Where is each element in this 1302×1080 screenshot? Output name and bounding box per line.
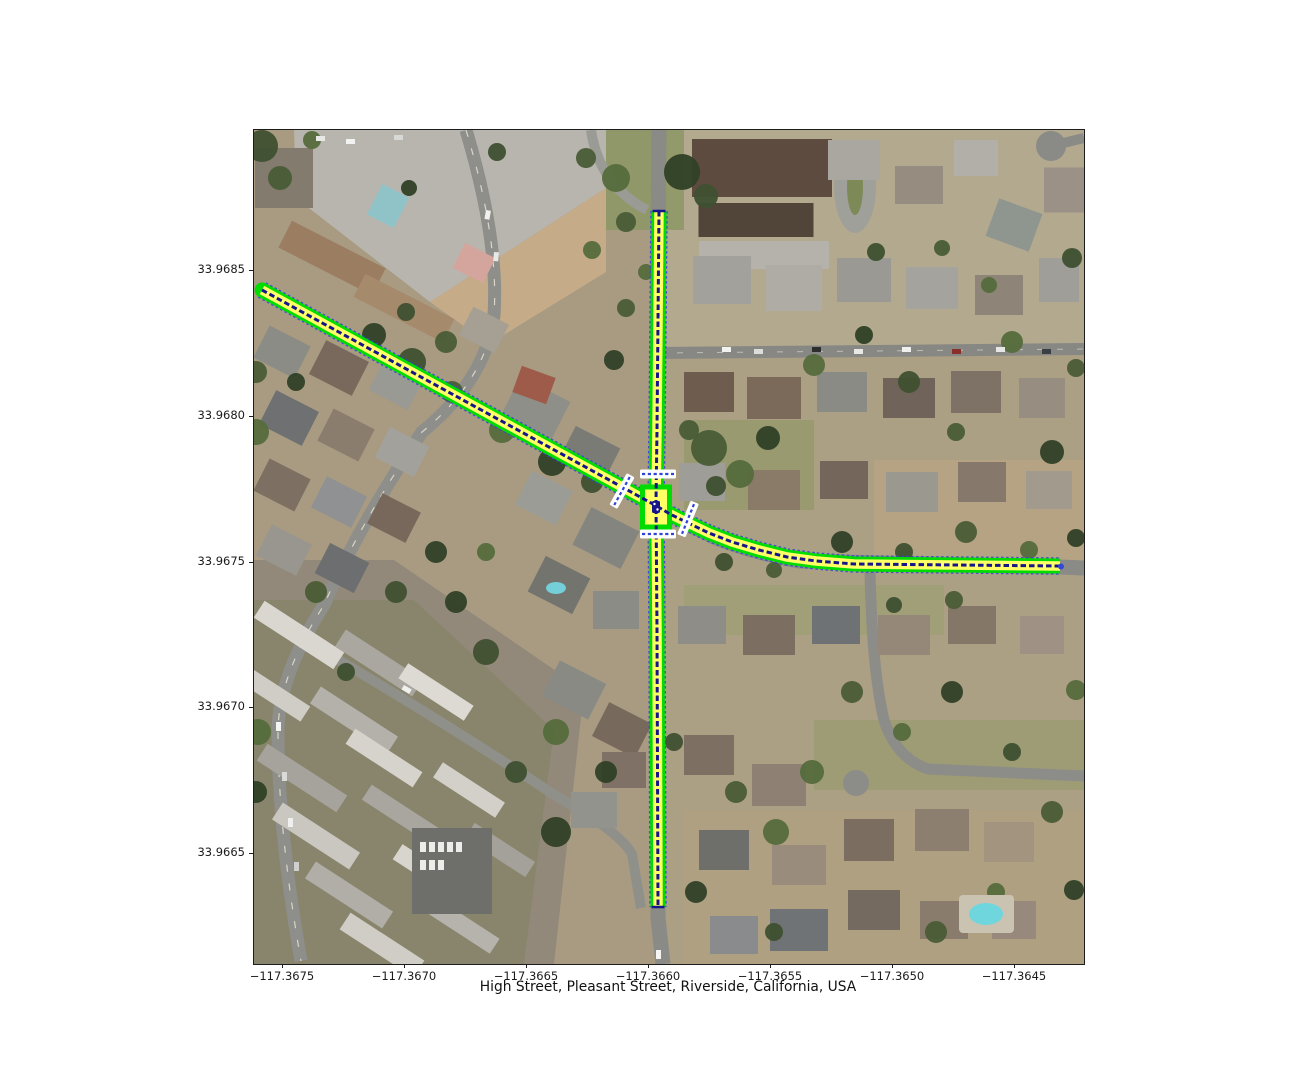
x-tickmark: [1014, 964, 1015, 968]
y-tickmark: [249, 562, 253, 563]
x-tickmark: [404, 964, 405, 968]
x-tickmark: [282, 964, 283, 968]
crosswalk-marker: [640, 530, 676, 539]
y-tick-label: 33.9675: [150, 554, 245, 568]
matplotlib-figure: −117.3675−117.3670−117.3665−117.3660−117…: [0, 0, 1302, 1080]
y-tickmark: [249, 707, 253, 708]
x-tickmark: [648, 964, 649, 968]
y-tick-label: 33.9680: [150, 408, 245, 422]
plot-title: High Street, Pleasant Street, Riverside,…: [253, 979, 1083, 995]
y-tick-label: 33.9670: [150, 699, 245, 713]
map-plot-area: [253, 129, 1085, 965]
x-tickmark: [770, 964, 771, 968]
y-tick-label: 33.9685: [150, 262, 245, 276]
y-tick-label: 33.9665: [150, 845, 245, 859]
y-tickmark: [249, 270, 253, 271]
satellite-map-image: [254, 130, 1084, 964]
x-tickmark: [526, 964, 527, 968]
aerial-imagery: [254, 130, 1084, 964]
y-tickmark: [249, 416, 253, 417]
route-endcap-east: [1058, 564, 1064, 570]
x-tickmark: [892, 964, 893, 968]
junction-signal-icon: [652, 501, 660, 513]
crosswalk-marker: [640, 470, 676, 479]
y-tickmark: [249, 853, 253, 854]
